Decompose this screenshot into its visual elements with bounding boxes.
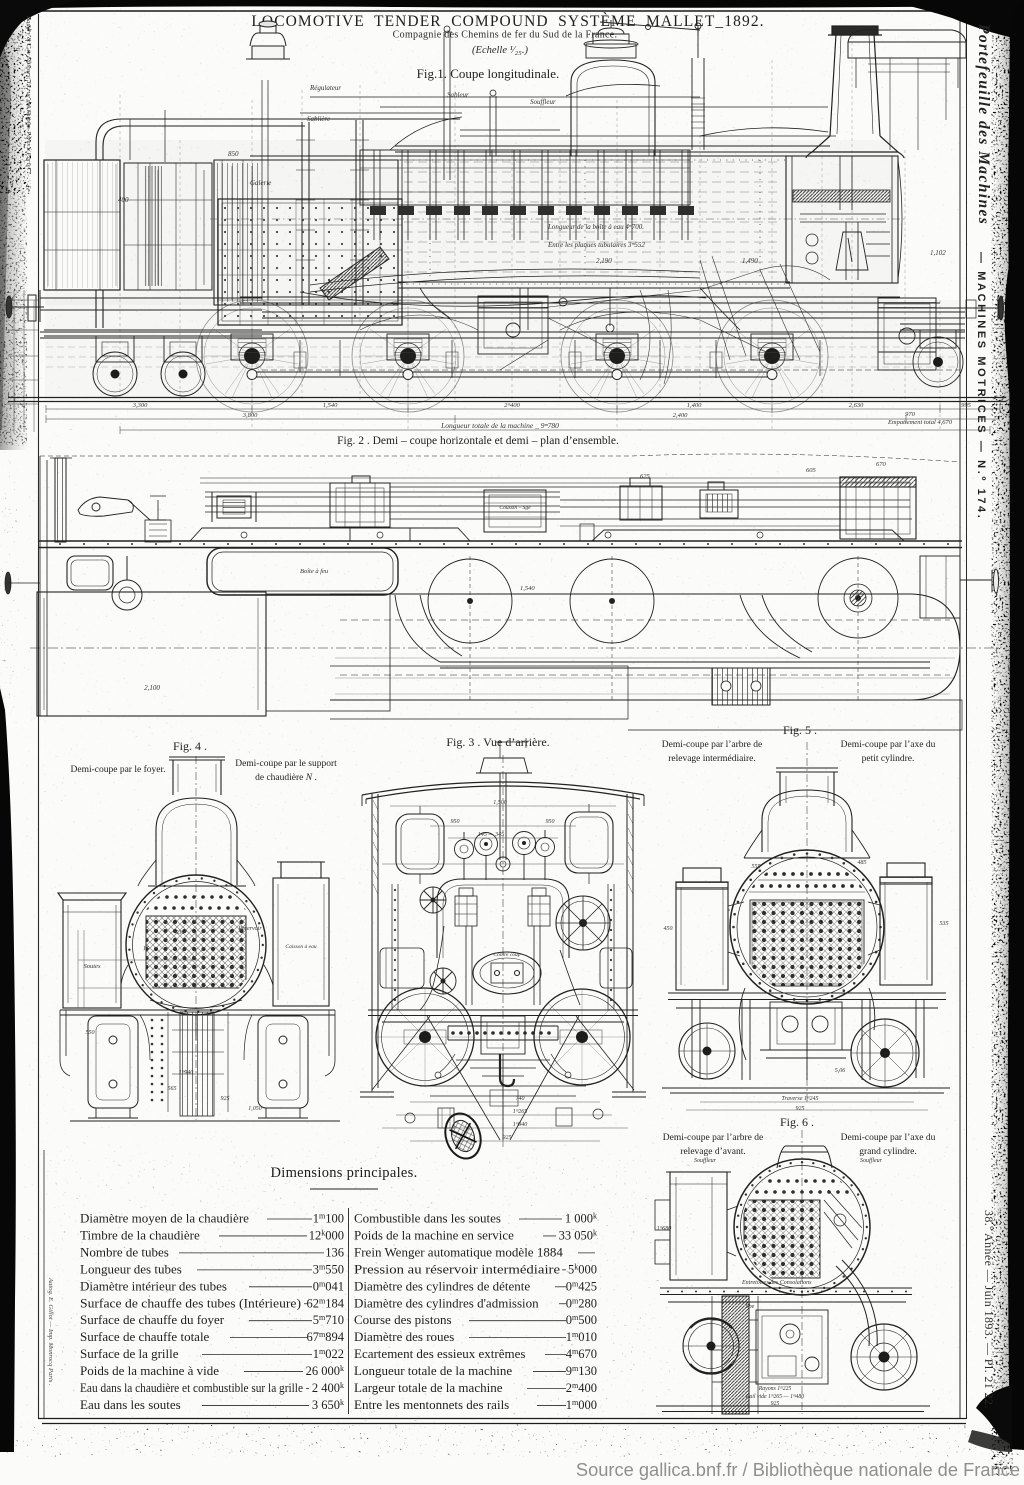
svg-text:536: 536 bbox=[176, 930, 185, 936]
svg-text:Poids de la machine en se: Poids de la machine en service bbox=[354, 1227, 514, 1242]
svg-text:4m670: 4m670 bbox=[566, 1347, 597, 1361]
svg-text:Timbre de la chaudière: Timbre de la chaudière bbox=[80, 1227, 200, 1242]
svg-text:1,500: 1,500 bbox=[493, 800, 507, 806]
svg-text:Fig. 5 .: Fig. 5 . bbox=[783, 723, 817, 737]
svg-text:Entre les plaques tubulair: Entre les plaques tubulaires 3ᵐ552 bbox=[547, 241, 645, 249]
svg-text:3,300: 3,300 bbox=[132, 402, 148, 409]
svg-text:Source gallica.bnf.fr / Biblio: Source gallica.bnf.fr / Bibliothèque nat… bbox=[576, 1459, 1020, 1480]
svg-text:Nombre de tubes: Nombre de tubes bbox=[80, 1244, 169, 1259]
svg-text:Surface de la grille: Surface de la grille bbox=[80, 1346, 179, 1361]
svg-text:3 650k: 3 650k bbox=[312, 1398, 344, 1412]
svg-text:Autog. E. Gillot — Imp. Monroc: Autog. E. Gillot — Imp. Monrocq Paris . bbox=[47, 1277, 54, 1386]
svg-text:16: 16 bbox=[143, 946, 149, 952]
svg-text:1m010: 1m010 bbox=[566, 1330, 597, 1344]
svg-text:450: 450 bbox=[664, 925, 673, 932]
svg-text:Contre coup: Contre coup bbox=[493, 952, 520, 958]
svg-text:400: 400 bbox=[118, 196, 129, 204]
svg-text:Fig. 4 .: Fig. 4 . bbox=[173, 739, 207, 753]
svg-text:925: 925 bbox=[771, 1401, 780, 1407]
svg-text:0m425: 0m425 bbox=[566, 1279, 597, 1293]
svg-text:62m184: 62m184 bbox=[307, 1296, 345, 1310]
svg-text:5,06: 5,06 bbox=[835, 1068, 846, 1074]
svg-text:925: 925 bbox=[503, 1135, 512, 1141]
svg-text:Réservoir: Réservoir bbox=[237, 926, 262, 932]
svg-text:Longueur totale de la mach: Longueur totale de la machine bbox=[354, 1363, 512, 1378]
svg-text:38.º Année — Juin 1893. — Pl.: 38.º Année — Juin 1893. — Pl. 21 22. bbox=[982, 1210, 996, 1409]
svg-text:1ᵐ940: 1ᵐ940 bbox=[179, 1069, 194, 1076]
svg-text:Surface de chauffe des tub: Surface de chauffe des tubes (Intérieure… bbox=[80, 1295, 301, 1310]
svg-text:Diamètre des roues: Diamètre des roues bbox=[354, 1329, 454, 1344]
svg-text:485: 485 bbox=[858, 859, 867, 866]
svg-text:Demi-coupe par le foyer.: Demi-coupe par le foyer. bbox=[71, 764, 166, 775]
svg-text:Soutes: Soutes bbox=[84, 963, 101, 970]
svg-text:535: 535 bbox=[940, 921, 949, 927]
svg-text:2m400: 2m400 bbox=[566, 1381, 597, 1395]
svg-text:1,050: 1,050 bbox=[248, 1106, 262, 1112]
svg-text:2,630: 2,630 bbox=[849, 402, 864, 409]
svg-text:Diamètre intérieur des tube: Diamètre intérieur des tubes bbox=[80, 1278, 227, 1293]
svg-text:Traverse 1ᵐ245: Traverse 1ᵐ245 bbox=[781, 1095, 818, 1102]
svg-text:Compagnie des Chemins de fer d: Compagnie des Chemins de fer du Sud de l… bbox=[393, 30, 618, 41]
svg-text:9m130: 9m130 bbox=[566, 1364, 597, 1378]
svg-text:3m550: 3m550 bbox=[313, 1262, 344, 1276]
svg-text:1ᵐ680: 1ᵐ680 bbox=[657, 1226, 672, 1232]
svg-text:Régulateur: Régulateur bbox=[309, 84, 341, 92]
svg-text:33 050k: 33 050k bbox=[559, 1228, 597, 1242]
svg-text:Rail vide 1ᵐ265 — 1ᵐ480: Rail vide 1ᵐ265 — 1ᵐ480 bbox=[745, 1393, 804, 1400]
svg-text:67m894: 67m894 bbox=[307, 1330, 345, 1344]
svg-text:3,800: 3,800 bbox=[242, 412, 258, 419]
svg-text:Diamètre des cylindres de: Diamètre des cylindres de détente bbox=[354, 1278, 530, 1293]
svg-text:1m100: 1m100 bbox=[313, 1212, 344, 1226]
svg-text:Baudry & C.ie éditeurs, 15 rue: Baudry & C.ie éditeurs, 15 rue des Saint… bbox=[25, 16, 32, 170]
svg-text:1ᵐ940: 1ᵐ940 bbox=[513, 1121, 528, 1128]
svg-text:Fig.1. Coupe longitudinale.: Fig.1. Coupe longitudinale. bbox=[417, 66, 560, 81]
svg-text:Souffleur: Souffleur bbox=[860, 1157, 883, 1164]
svg-text:850: 850 bbox=[228, 150, 239, 158]
svg-text:Demi-coupe par l’axe du: Demi-coupe par l’axe du bbox=[841, 740, 936, 750]
svg-text:995: 995 bbox=[961, 402, 972, 409]
svg-text:1m022: 1m022 bbox=[313, 1347, 344, 1361]
svg-text:de chaudière N .: de chaudière N . bbox=[255, 773, 317, 783]
svg-text:1 000k: 1 000k bbox=[565, 1212, 597, 1226]
svg-text:740: 740 bbox=[516, 1095, 525, 1102]
svg-text:925: 925 bbox=[796, 1106, 805, 1112]
svg-text:Souffleur: Souffleur bbox=[694, 1157, 717, 1164]
svg-text:2ᵐ400: 2ᵐ400 bbox=[504, 402, 520, 409]
svg-text:145 — 345: 145 — 345 bbox=[478, 831, 504, 838]
svg-text:Ecartement des essieux extr: Ecartement des essieux extrêmes bbox=[354, 1346, 525, 1361]
svg-text:1,400: 1,400 bbox=[687, 402, 702, 409]
svg-text:Caisson à eau: Caisson à eau bbox=[285, 944, 316, 950]
svg-text:1,540: 1,540 bbox=[323, 402, 338, 409]
svg-text:12k000: 12k000 bbox=[309, 1228, 344, 1242]
svg-text:625: 625 bbox=[640, 473, 651, 480]
svg-text:Frein Wenger automatique mo: Frein Wenger automatique modèle 1884 bbox=[354, 1244, 563, 1259]
svg-text:Boîte à feu: Boîte à feu bbox=[300, 568, 329, 575]
svg-text:1,490: 1,490 bbox=[742, 257, 758, 265]
svg-text:5m710: 5m710 bbox=[313, 1313, 344, 1327]
svg-text:Fig. 2 . Demi – coupe horizon: Fig. 2 . Demi – coupe horizontale et dem… bbox=[337, 435, 619, 447]
svg-text:925: 925 bbox=[221, 1096, 230, 1102]
svg-text:950: 950 bbox=[451, 819, 460, 825]
svg-text:0m041: 0m041 bbox=[313, 1279, 344, 1293]
svg-text:Sableur: Sableur bbox=[447, 91, 469, 99]
svg-text:Course des pistons: Course des pistons bbox=[354, 1312, 452, 1327]
svg-text:1ᵐ265: 1ᵐ265 bbox=[513, 1109, 528, 1115]
svg-text:Sablière: Sablière bbox=[307, 115, 330, 123]
svg-text:Portefeuille des Machines: Portefeuille des Machines bbox=[975, 24, 992, 225]
svg-text:Demi-coupe par l’axe du: Demi-coupe par l’axe du bbox=[841, 1133, 936, 1143]
svg-text:5k000: 5k000 bbox=[568, 1262, 597, 1276]
svg-text:LOCOMOTIVE TENDER COMPOUND SYS: LOCOMOTIVE TENDER COMPOUND SYSTÈME MALLE… bbox=[251, 13, 764, 30]
svg-text:2,100: 2,100 bbox=[144, 684, 160, 692]
svg-text:136: 136 bbox=[325, 1245, 344, 1259]
svg-text:Diamètre des cylindres d'ad: Diamètre des cylindres d'admission bbox=[354, 1295, 539, 1310]
svg-text:Demi-coupe par l’arbre de: Demi-coupe par l’arbre de bbox=[662, 740, 763, 750]
svg-text:26 000k: 26 000k bbox=[306, 1364, 344, 1378]
svg-text:relevage intermédiaire.: relevage intermédiaire. bbox=[668, 754, 756, 764]
svg-text:550: 550 bbox=[86, 1030, 95, 1036]
svg-text:Coussin – Sge: Coussin – Sge bbox=[499, 505, 531, 511]
svg-text:Largeur totale de la machi: Largeur totale de la machine bbox=[354, 1380, 503, 1395]
svg-text:Diamètre moyen de la chaud: Diamètre moyen de la chaudière bbox=[80, 1211, 249, 1226]
svg-text:0m280: 0m280 bbox=[566, 1296, 597, 1310]
svg-text:Sbe: Sbe bbox=[746, 1304, 755, 1310]
svg-text:Demi-coupe par l’arbre de: Demi-coupe par l’arbre de bbox=[663, 1133, 764, 1143]
svg-text:Empattement total 4,670: Empattement total 4,670 bbox=[887, 419, 953, 426]
svg-text:950: 950 bbox=[546, 819, 555, 825]
svg-text:Entre les mentonnets des r: Entre les mentonnets des rails bbox=[354, 1397, 509, 1412]
svg-text:Poids de la machine à vid: Poids de la machine à vide bbox=[80, 1363, 219, 1378]
svg-text:2,190: 2,190 bbox=[596, 257, 612, 265]
svg-text:1m000: 1m000 bbox=[566, 1398, 597, 1412]
svg-text:Entretoises des Consolations: Entretoises des Consolations bbox=[741, 1280, 812, 1286]
svg-text:Combustible dans les soutes: Combustible dans les soutes bbox=[354, 1211, 501, 1226]
svg-text:605: 605 bbox=[806, 467, 817, 474]
svg-text:petit cylindre.: petit cylindre. bbox=[862, 754, 915, 764]
svg-text:— MACHINES MOTRICES — N.º 174: — MACHINES MOTRICES — N.º 174. bbox=[975, 252, 987, 520]
svg-text:relevage d’avant.: relevage d’avant. bbox=[680, 1147, 745, 1157]
svg-text:Galerie: Galerie bbox=[250, 179, 271, 187]
svg-text:Souffleur: Souffleur bbox=[530, 98, 556, 106]
svg-text:Fig. 6 .: Fig. 6 . bbox=[780, 1115, 814, 1129]
svg-text:Dimensions principales.: Dimensions principales. bbox=[270, 1165, 417, 1181]
svg-text:2 400k: 2 400k bbox=[312, 1381, 344, 1395]
svg-text:(Echelle ¹⁄₂₅.): (Echelle ¹⁄₂₅.) bbox=[472, 45, 528, 56]
svg-text:Eau dans la chaudière et combu: Eau dans la chaudière et combustible sur… bbox=[80, 1380, 303, 1395]
svg-text:Surface de chauffe du foye: Surface de chauffe du foyer bbox=[80, 1312, 225, 1327]
svg-text:555: 555 bbox=[752, 864, 761, 870]
svg-text:Pression au réservoir inter: Pression au réservoir intermédiaire bbox=[354, 1261, 560, 1276]
svg-text:Eau dans les soutes: Eau dans les soutes bbox=[80, 1397, 181, 1412]
svg-text:Rayons 1ᵐ225: Rayons 1ᵐ225 bbox=[758, 1386, 792, 1392]
svg-text:Longueur des tubes: Longueur des tubes bbox=[80, 1261, 182, 1276]
svg-text:Longueur totale de la mach: Longueur totale de la machine _ 9ᵐ780 bbox=[440, 421, 559, 430]
svg-text:Demi-coupe par le support: Demi-coupe par le support bbox=[235, 759, 337, 769]
svg-text:2,400: 2,400 bbox=[673, 412, 688, 419]
svg-text:grand cylindre.: grand cylindre. bbox=[859, 1147, 917, 1157]
svg-text:1,102: 1,102 bbox=[930, 249, 946, 257]
svg-text:Surface de chauffe totale: Surface de chauffe totale bbox=[80, 1329, 210, 1344]
svg-text:0m500: 0m500 bbox=[566, 1313, 597, 1327]
svg-text:1,540: 1,540 bbox=[520, 585, 535, 592]
svg-text:970: 970 bbox=[905, 411, 916, 418]
svg-text:670: 670 bbox=[876, 461, 887, 468]
svg-text:565: 565 bbox=[168, 1086, 177, 1092]
svg-text:Longueur de la boîte à eau: Longueur de la boîte à eau 4ᵐ700. bbox=[547, 223, 644, 231]
